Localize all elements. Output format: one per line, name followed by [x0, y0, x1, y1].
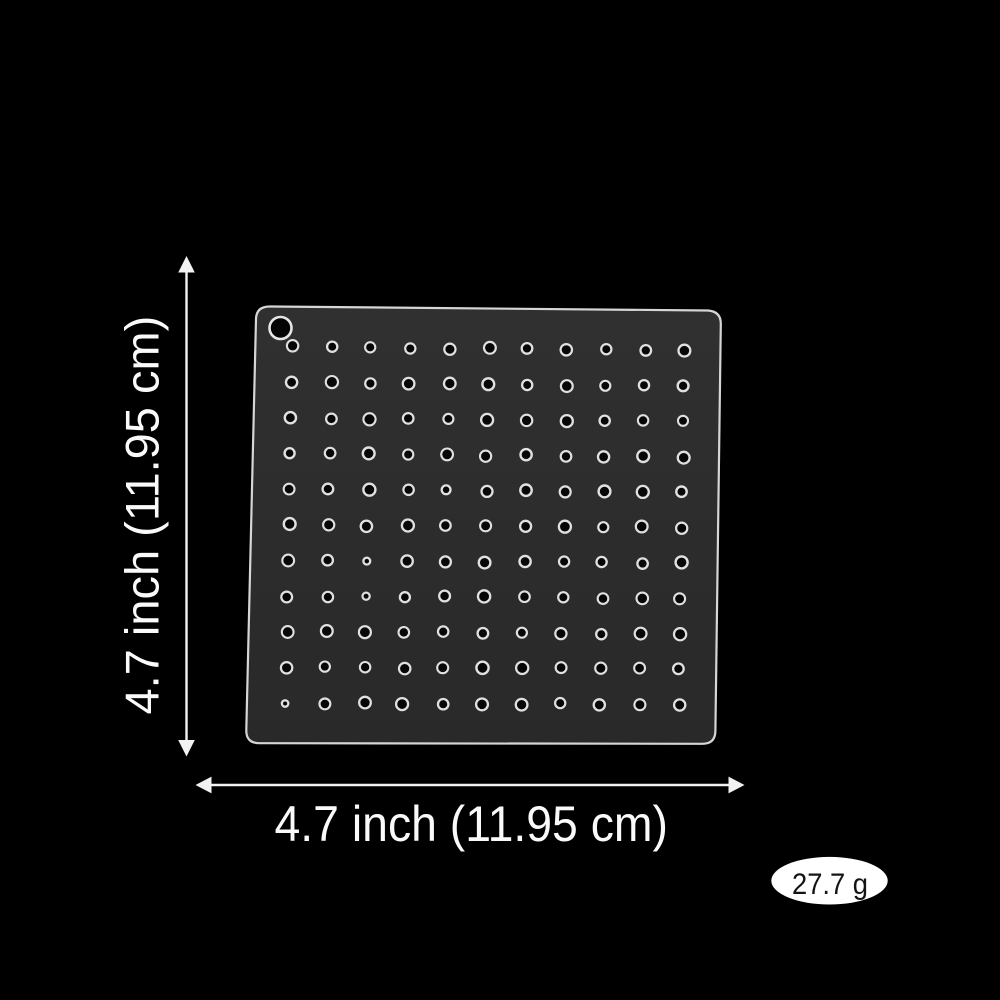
svg-text:27.7 g: 27.7 g — [792, 868, 868, 901]
svg-text:4.7 inch (11.95 cm): 4.7 inch (11.95 cm) — [275, 796, 669, 852]
svg-text:4.7 inch (11.95 cm): 4.7 inch (11.95 cm) — [116, 316, 169, 715]
